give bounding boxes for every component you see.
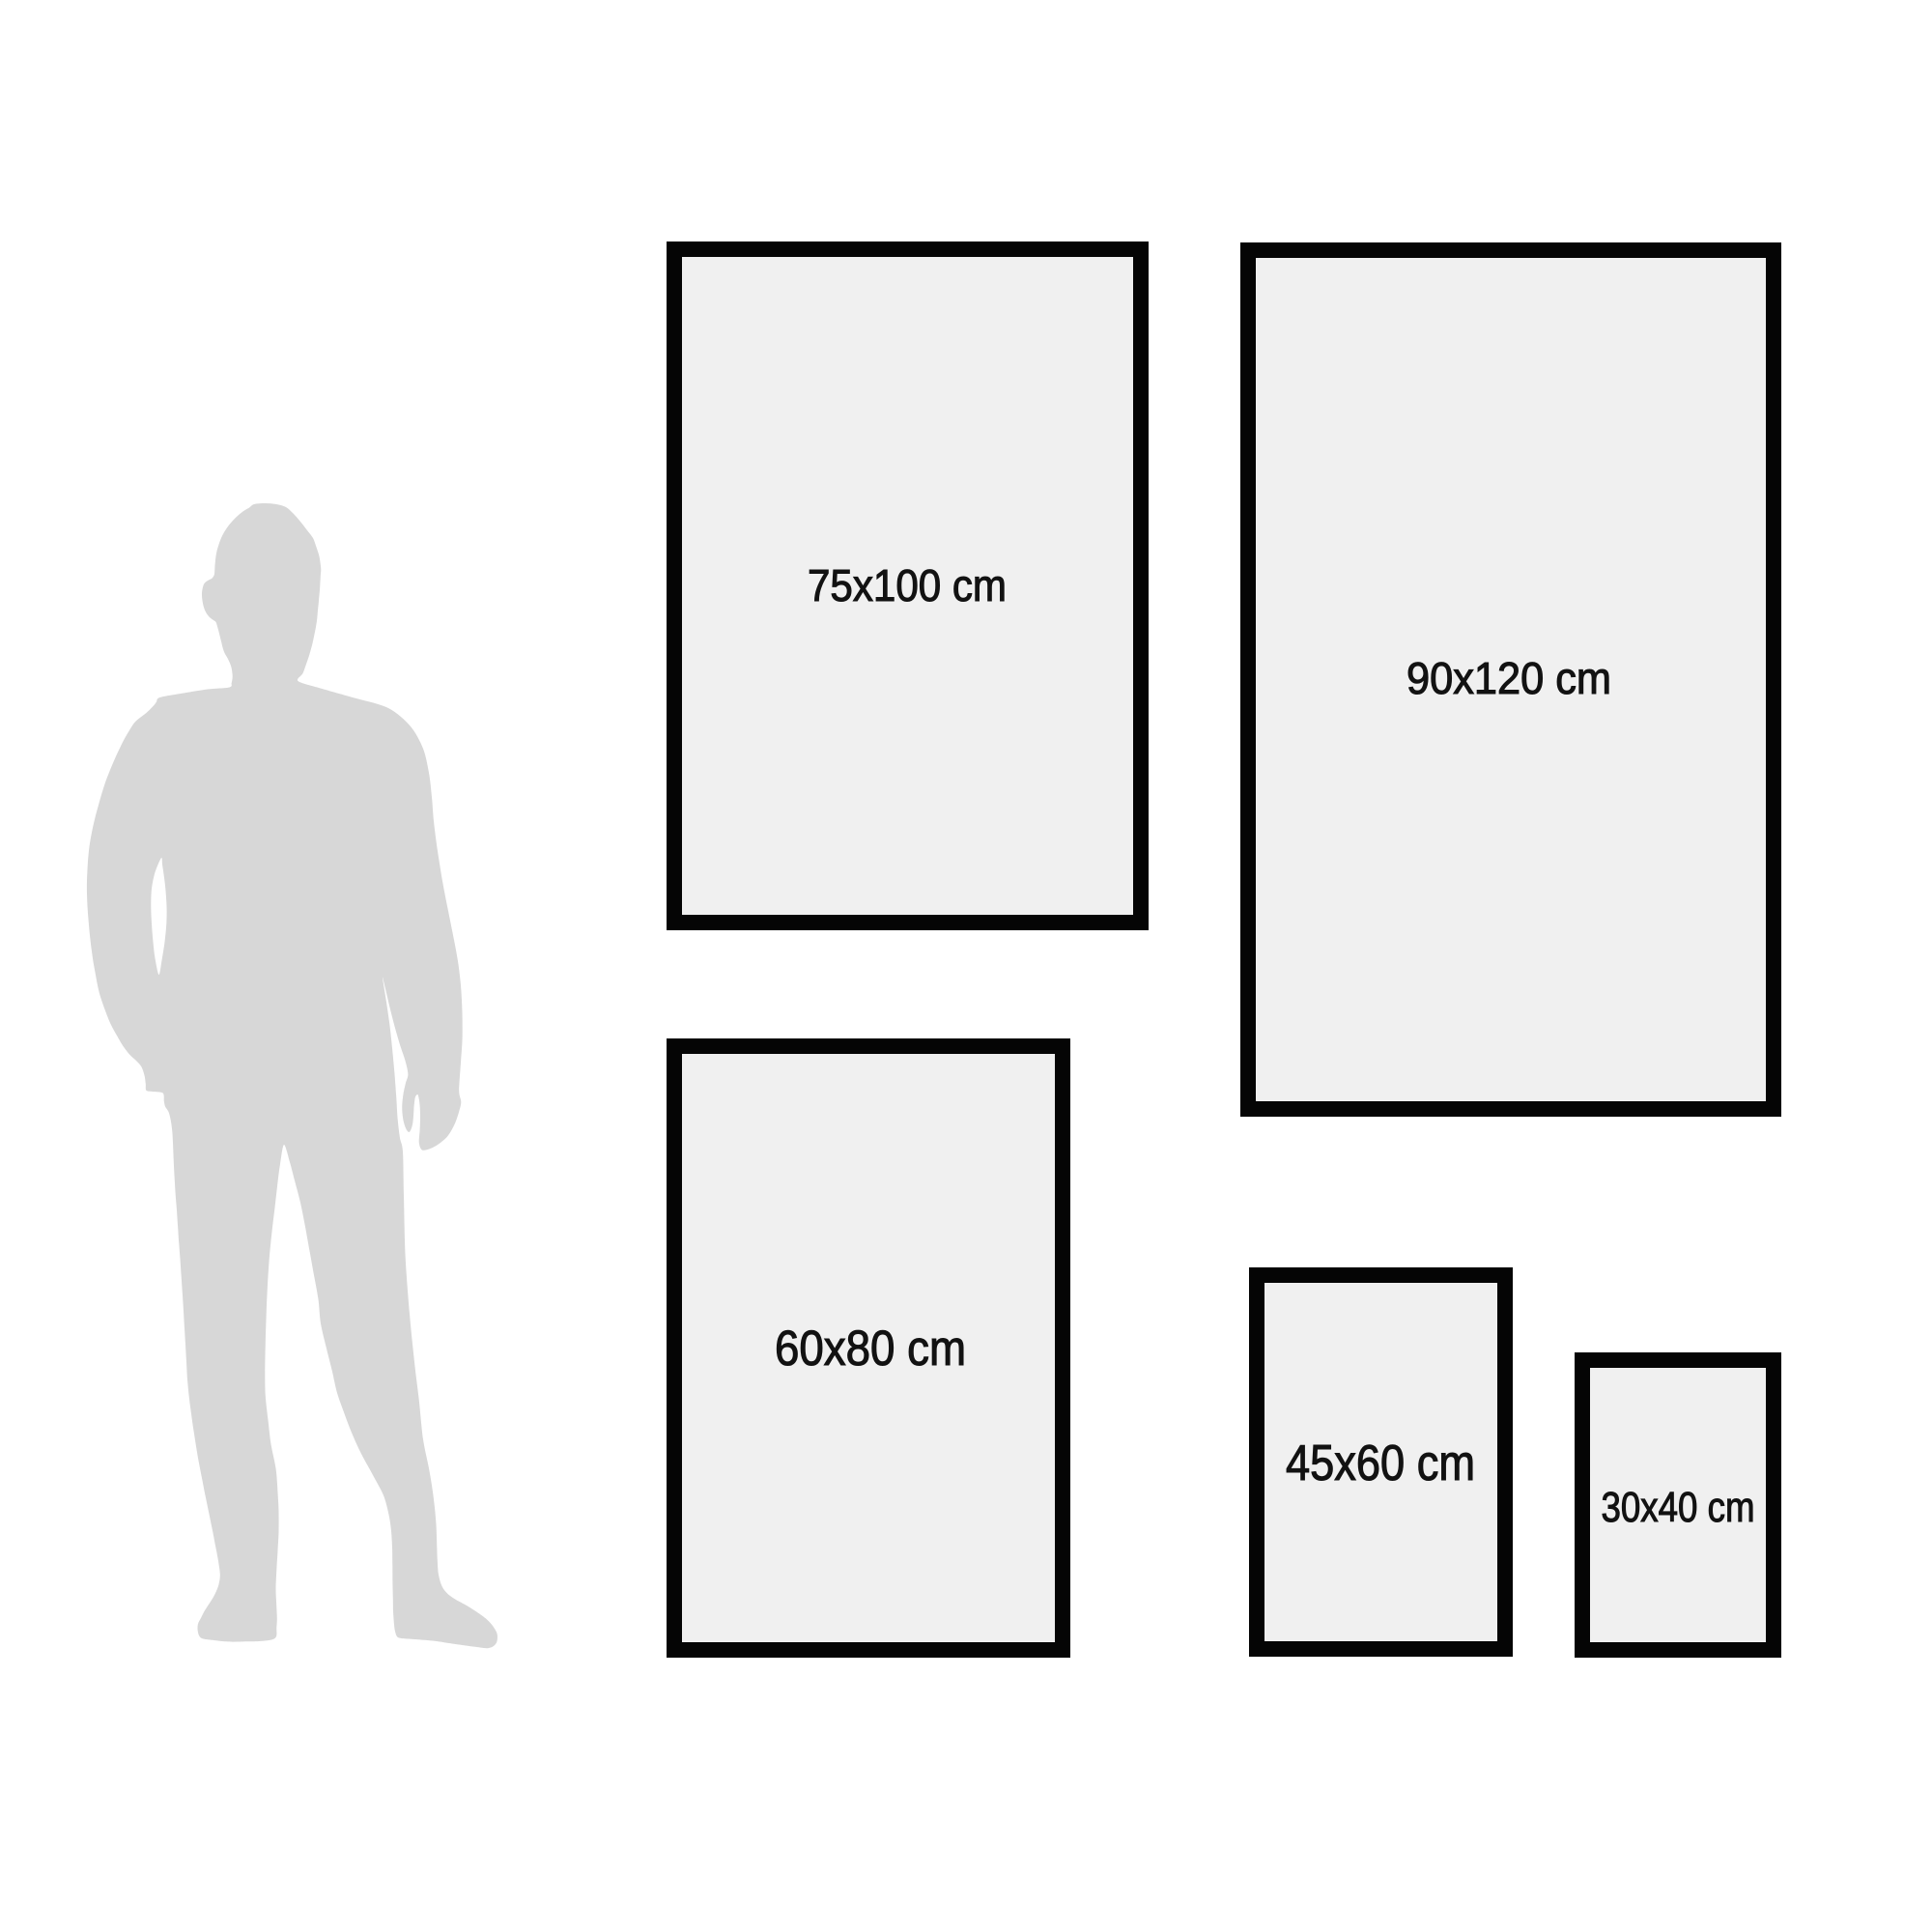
svg-text:90x120 cm: 90x120 cm xyxy=(1406,653,1611,703)
svg-text:75x100 cm: 75x100 cm xyxy=(808,560,1007,611)
svg-text:45x60 cm: 45x60 cm xyxy=(1286,1435,1475,1491)
svg-text:30x40 cm: 30x40 cm xyxy=(1602,1484,1755,1531)
svg-text:60x80 cm: 60x80 cm xyxy=(775,1321,966,1376)
